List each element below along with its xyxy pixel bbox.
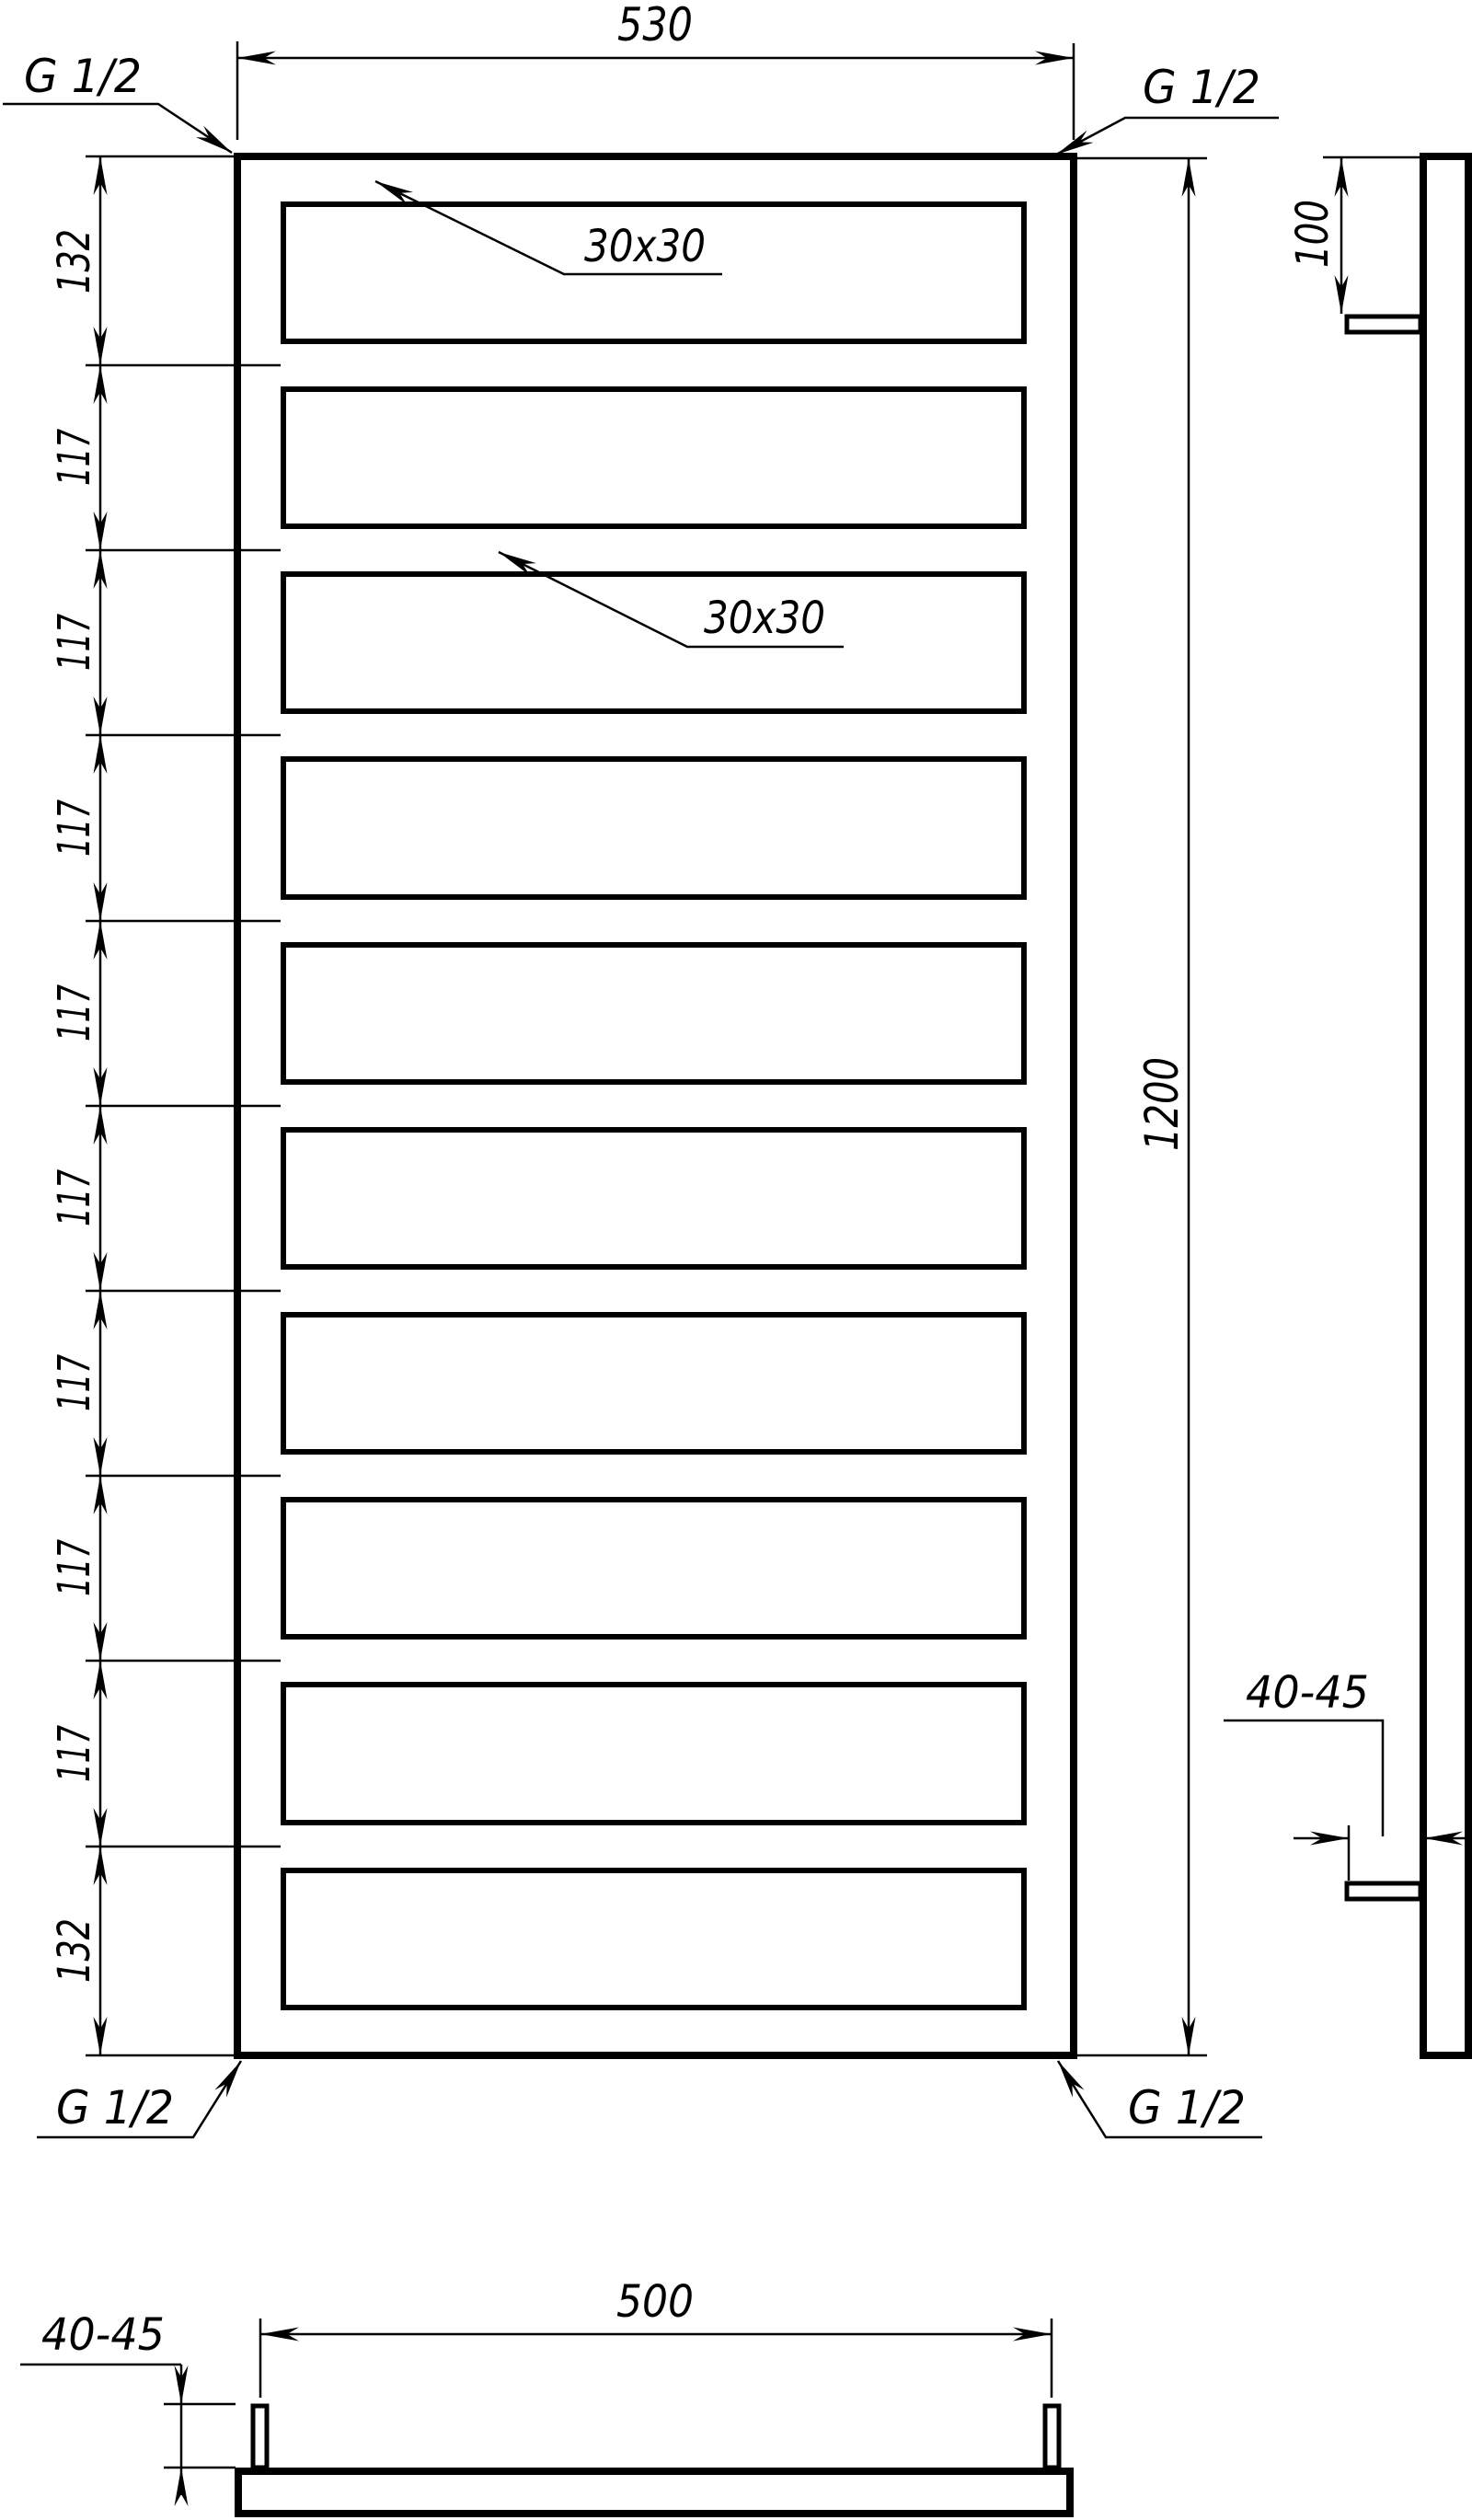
dim-117-1: 117 [49,429,100,486]
front-opening-10 [283,1870,1024,2008]
dim-132-top: 132 [49,229,100,293]
front-opening-3 [283,574,1024,711]
dim-117-6: 117 [49,1354,100,1411]
technical-drawing: 530G 1/2G 1/230x3030x3012001001321171171… [0,0,1472,2520]
thread-g12-bottom-right: G 1/2 [1128,2081,1246,2135]
side-bracket-top [1347,316,1420,332]
callout-30x30-lower: 30x30 [704,593,825,644]
front-opening-9 [283,1685,1024,1823]
bottom-stud-left [253,2406,267,2468]
bottom-slab-outline [238,2471,1070,2514]
bottom-stud-right [1045,2406,1059,2468]
drawing-canvas: 530G 1/2G 1/230x3030x3012001001321171171… [0,0,1472,2520]
front-opening-8 [283,1500,1024,1637]
front-opening-7 [283,1315,1024,1452]
thread-g12-top-left: G 1/2 [24,50,142,103]
thread-g12-top-right: G 1/2 [1143,61,1260,114]
side-tube-outline [1423,156,1468,2055]
front-opening-4 [283,759,1024,897]
dim-117-3: 117 [49,800,100,857]
dim-117-8: 117 [49,1725,100,1782]
dim-530: 530 [617,0,693,52]
drawing-page: 530G 1/2G 1/230x3030x3012001001321171171… [0,0,1472,2520]
dim-117-2: 117 [49,614,100,671]
front-opening-5 [283,945,1024,1082]
side-bracket-bottom [1347,1883,1420,1899]
dim-1200: 1200 [1135,1057,1189,1151]
front-opening-2 [283,389,1024,526]
dim-4045-bottom: 40-45 [41,2309,165,2361]
dim-132-bottom: 132 [49,1918,100,1983]
front-opening-6 [283,1130,1024,1267]
dim-100: 100 [1287,200,1339,268]
dim-117-5: 117 [49,1169,100,1226]
callout-30x30-upper: 30x30 [584,221,706,272]
dim-4045-side: 40-45 [1246,1667,1369,1719]
dim-500: 500 [616,2276,694,2328]
dim-117-7: 117 [49,1539,100,1596]
thread-g12-bottom-left: G 1/2 [56,2081,174,2135]
dim-117-4: 117 [49,984,100,1041]
